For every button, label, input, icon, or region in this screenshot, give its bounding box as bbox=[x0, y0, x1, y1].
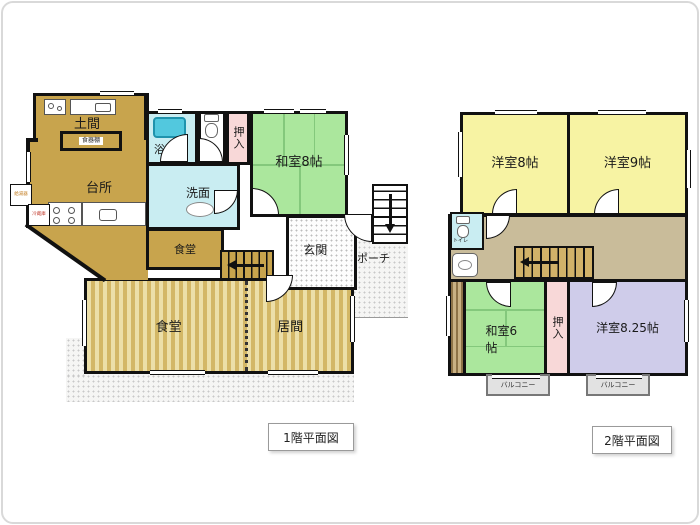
balcony-right-label: バルコニー bbox=[601, 380, 636, 390]
porch-label: ポーチ bbox=[357, 250, 390, 266]
washbasin-oval-icon bbox=[186, 202, 214, 217]
room-dining-living: 食堂 居間 bbox=[84, 278, 354, 374]
western825-label: 洋室8.25帖 bbox=[596, 319, 659, 336]
stove-icon bbox=[44, 99, 66, 115]
window bbox=[350, 296, 355, 342]
window bbox=[300, 109, 326, 114]
room-closet-1f: 押入 bbox=[226, 111, 250, 165]
dining-living-divider bbox=[245, 281, 248, 371]
window bbox=[344, 135, 349, 175]
window bbox=[26, 152, 31, 182]
window bbox=[596, 374, 642, 379]
caption-floor1: 1階平面図 bbox=[268, 423, 354, 451]
room-western9: 洋室9帖 bbox=[567, 112, 688, 216]
caption-floor2: 2階平面図 bbox=[592, 426, 672, 454]
cupboard-box: 食器棚 bbox=[60, 131, 122, 151]
western8-label: 洋室8帖 bbox=[491, 157, 538, 171]
toilet-2f-label: トイレ bbox=[453, 239, 468, 245]
entrance-label: 玄関 bbox=[303, 241, 327, 258]
water-heater-label: 給湯器 bbox=[14, 192, 28, 197]
living-label: 居間 bbox=[277, 321, 303, 335]
washitsu6-label: 和室6帖 bbox=[486, 322, 525, 356]
water-heater-box: 給湯器 bbox=[10, 184, 32, 206]
window bbox=[684, 300, 689, 342]
cupboard-label: 食器棚 bbox=[79, 137, 103, 146]
washroom-label: 洗面 bbox=[186, 184, 210, 201]
window bbox=[495, 110, 537, 115]
closet-2f-label: 押入 bbox=[549, 316, 565, 340]
dining-small-label: 食堂 bbox=[174, 241, 196, 257]
room-western825: 洋室8.25帖 bbox=[567, 279, 688, 376]
window bbox=[82, 300, 87, 346]
window bbox=[100, 91, 134, 96]
fridge-box: 冷蔵庫 bbox=[28, 204, 50, 226]
washitsu8-label: 和室8帖 bbox=[275, 156, 322, 170]
terrace-stipple bbox=[66, 374, 354, 402]
floor-plan-canvas: ポーチ 食堂 居間 土間 食器棚 台所 給湯器 冷蔵庫 bbox=[0, 0, 700, 525]
toilet-2f-tank-icon bbox=[456, 216, 470, 224]
window bbox=[264, 109, 294, 114]
kitchen-corner-stub bbox=[26, 138, 38, 142]
window bbox=[458, 132, 463, 177]
caption-floor1-label: 1階平面図 bbox=[283, 429, 339, 446]
window bbox=[268, 370, 318, 375]
toilet-tank-icon bbox=[204, 114, 219, 122]
doma-bath-stub-wall bbox=[145, 93, 149, 113]
western9-label: 洋室9帖 bbox=[604, 157, 651, 171]
window bbox=[158, 109, 182, 114]
dining-label: 食堂 bbox=[156, 321, 182, 335]
window bbox=[150, 370, 205, 375]
window bbox=[598, 110, 646, 115]
window bbox=[492, 374, 540, 379]
kitchen-label: 台所 bbox=[86, 182, 112, 196]
caption-floor2-label: 2階平面図 bbox=[604, 432, 660, 449]
kitchen-sink-icon bbox=[82, 202, 146, 226]
window bbox=[686, 150, 691, 188]
washbasin-2f-icon bbox=[452, 253, 478, 277]
room-dining-small: 食堂 bbox=[146, 228, 224, 270]
window bbox=[446, 296, 451, 336]
sink-counter-icon bbox=[70, 99, 116, 115]
toilet-2f-bowl-icon bbox=[457, 225, 469, 238]
fridge-label: 冷蔵庫 bbox=[32, 212, 46, 217]
cooktop-icon bbox=[48, 202, 82, 226]
closet-1f-label: 押入 bbox=[230, 126, 246, 150]
stairs-2f bbox=[514, 246, 594, 279]
toilet-bowl-icon bbox=[205, 123, 218, 138]
stairs-outside bbox=[372, 184, 408, 244]
balcony-left-label: バルコニー bbox=[501, 380, 536, 390]
